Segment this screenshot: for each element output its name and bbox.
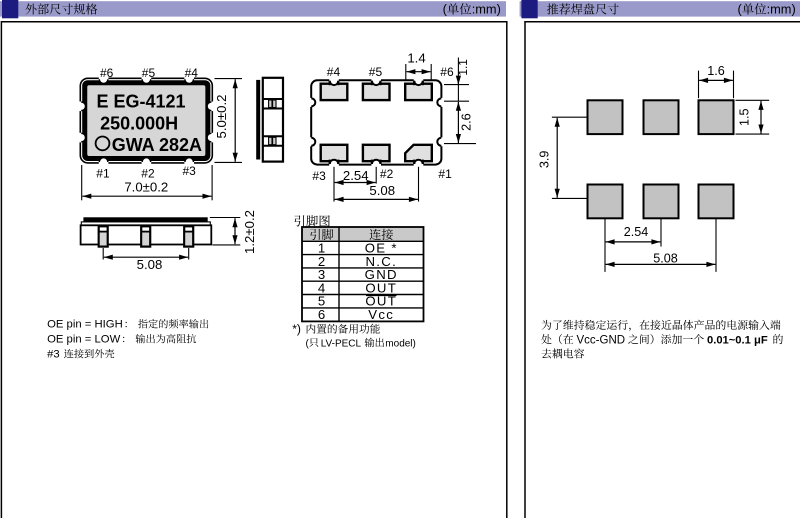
svg-text:#2: #2 xyxy=(141,166,155,180)
svg-text:#5: #5 xyxy=(142,66,156,80)
svg-text:6: 6 xyxy=(318,307,325,322)
svg-text:model): model) xyxy=(385,338,416,349)
svg-text:#1: #1 xyxy=(96,166,110,180)
svg-text::mm): :mm) xyxy=(767,2,796,17)
svg-text::mm): :mm) xyxy=(472,2,501,17)
svg-text:1.2±0.2: 1.2±0.2 xyxy=(242,210,257,254)
svg-text:0.01~0.1 μF: 0.01~0.1 μF xyxy=(707,334,768,346)
svg-text:(: ( xyxy=(738,2,743,17)
svg-text:#5: #5 xyxy=(369,65,383,79)
svg-text:1.1: 1.1 xyxy=(456,59,470,75)
svg-text:1.4: 1.4 xyxy=(407,51,425,66)
svg-text:#4: #4 xyxy=(327,65,341,79)
svg-text:5.08: 5.08 xyxy=(653,251,678,265)
svg-text:LV-PECL: LV-PECL xyxy=(321,338,362,349)
svg-text:2.54: 2.54 xyxy=(343,168,369,183)
svg-text:7.0±0.2: 7.0±0.2 xyxy=(124,179,168,194)
svg-text:1.5: 1.5 xyxy=(738,108,752,126)
svg-text:#2: #2 xyxy=(380,167,394,181)
svg-text:(: ( xyxy=(306,338,310,349)
svg-text:(: ( xyxy=(443,2,448,17)
svg-text:5.08: 5.08 xyxy=(369,183,395,198)
svg-text:#6: #6 xyxy=(440,65,454,79)
svg-text:#6: #6 xyxy=(100,66,114,80)
svg-text:GWA 282A: GWA 282A xyxy=(112,135,202,155)
svg-text:OE pin = HIGH: OE pin = HIGH xyxy=(47,319,123,331)
svg-text:#1: #1 xyxy=(438,167,452,181)
svg-text:Vcc: Vcc xyxy=(368,307,394,322)
svg-text:*): *) xyxy=(292,322,301,336)
svg-text:2.6: 2.6 xyxy=(460,113,474,131)
svg-text:#3: #3 xyxy=(312,169,326,183)
svg-text:OE pin = LOW: OE pin = LOW xyxy=(47,334,120,346)
svg-text:5.0±0.2: 5.0±0.2 xyxy=(214,95,229,139)
svg-text:2.54: 2.54 xyxy=(624,225,649,239)
svg-text:#4: #4 xyxy=(185,66,199,80)
svg-text:#3: #3 xyxy=(183,164,197,178)
svg-text:#3: #3 xyxy=(47,348,60,360)
svg-text:3.9: 3.9 xyxy=(537,151,551,169)
svg-text:E EG-4121: E EG-4121 xyxy=(97,91,186,111)
svg-text:250.000H: 250.000H xyxy=(100,113,178,133)
svg-text:1.6: 1.6 xyxy=(707,64,725,78)
svg-text:5.08: 5.08 xyxy=(137,257,163,272)
svg-text:Vcc-GND: Vcc-GND xyxy=(577,334,626,346)
